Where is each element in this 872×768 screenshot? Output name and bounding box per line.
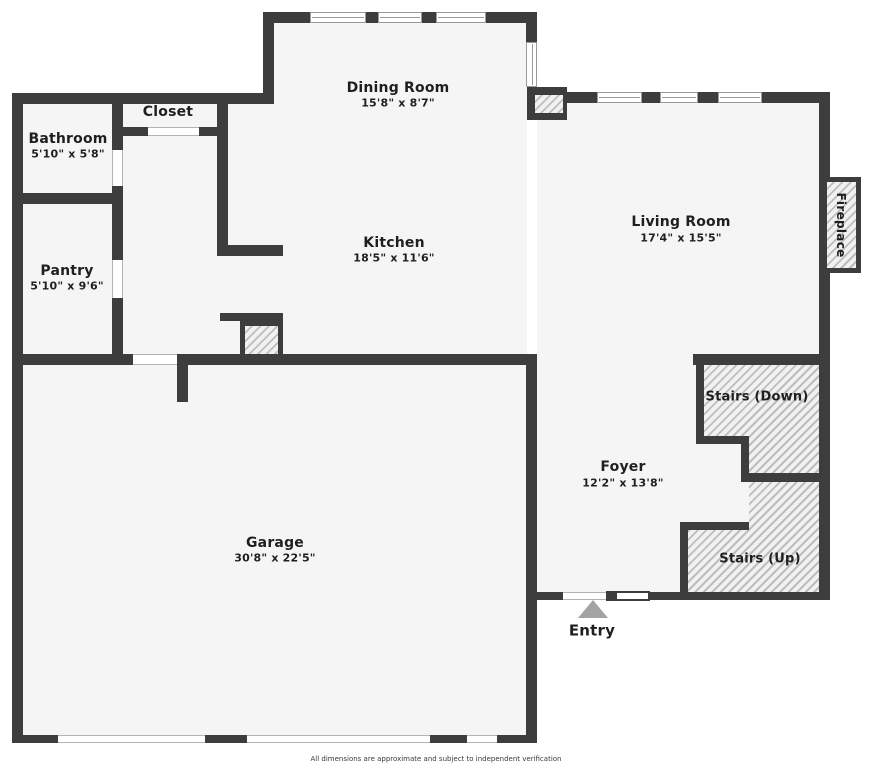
window xyxy=(378,12,422,23)
wall-segment xyxy=(650,592,830,600)
wall-segment xyxy=(12,93,274,104)
entry-label: Entry xyxy=(569,624,615,639)
fireplace-label: Fireplace xyxy=(834,192,848,257)
room-dims-foyer: 12'2" x 13'8" xyxy=(582,478,663,489)
door-opening-bathroom xyxy=(112,150,123,186)
room-label-dining-room: Dining Room xyxy=(347,81,450,95)
window xyxy=(436,12,486,23)
room-label-foyer: Foyer xyxy=(600,460,645,474)
wall-segment xyxy=(680,522,688,600)
wall-segment xyxy=(12,193,123,204)
room-dims-pantry: 5'10" x 9'6" xyxy=(30,281,104,292)
wall-segment xyxy=(642,92,660,103)
wall-segment xyxy=(526,12,537,42)
wall-segment xyxy=(177,365,188,402)
window xyxy=(597,92,642,103)
room-label-closet: Closet xyxy=(143,105,193,119)
wall-segment xyxy=(205,735,247,743)
wall-segment xyxy=(526,592,563,600)
entry-door xyxy=(615,591,650,601)
wall-segment xyxy=(696,365,704,444)
wall-segment xyxy=(217,104,228,256)
entry-marker-triangle xyxy=(578,600,608,618)
room-label-garage: Garage xyxy=(246,536,304,550)
window xyxy=(660,92,698,103)
window xyxy=(310,12,366,23)
wall-segment xyxy=(680,522,749,530)
window xyxy=(526,42,537,87)
door-opening-garage xyxy=(133,354,177,365)
wall-segment xyxy=(217,245,283,256)
wall-segment xyxy=(567,92,597,103)
room-label-bathroom: Bathroom xyxy=(28,132,107,146)
garage-door-opening xyxy=(247,735,430,743)
wall-segment xyxy=(12,93,23,743)
wall-segment xyxy=(422,12,436,23)
chimney-hatch xyxy=(535,95,563,113)
chimney-kitchen xyxy=(220,313,283,321)
wall-segment xyxy=(12,735,58,743)
room-label-living-room: Living Room xyxy=(631,215,730,229)
garage-door-opening xyxy=(58,735,205,743)
wall-segment xyxy=(430,735,467,743)
chimney-kitchen-box xyxy=(240,321,283,357)
wall-segment xyxy=(263,12,274,104)
wall-segment xyxy=(819,92,830,600)
wall-segment xyxy=(698,92,718,103)
floor-kitchen xyxy=(123,104,527,354)
disclaimer-text: All dimensions are approximate and subje… xyxy=(311,755,562,763)
wall-segment xyxy=(12,354,133,365)
door-opening-closet xyxy=(148,127,199,136)
floor-plan: Fireplace Bathroom 5'10" x 5'8" Closet P… xyxy=(0,0,872,768)
wall-segment xyxy=(123,127,148,136)
garage-window-opening xyxy=(467,735,497,743)
room-label-pantry: Pantry xyxy=(40,264,93,278)
wall-segment xyxy=(526,354,537,743)
room-label-stairs-down: Stairs (Down) xyxy=(706,391,809,404)
wall-segment xyxy=(366,12,378,23)
room-label-stairs-up: Stairs (Up) xyxy=(719,553,800,566)
room-dims-garage: 30'8" x 22'5" xyxy=(234,553,315,564)
wall-segment xyxy=(112,104,123,150)
wall-segment xyxy=(741,473,830,482)
room-dims-bathroom: 5'10" x 5'8" xyxy=(31,149,105,160)
wall-segment xyxy=(497,735,537,743)
wall-segment xyxy=(177,354,537,365)
wall-segment xyxy=(693,354,830,365)
wall-segment xyxy=(741,436,749,477)
room-dims-living-room: 17'4" x 15'5" xyxy=(640,233,721,244)
chimney-hatch xyxy=(245,326,278,357)
window xyxy=(718,92,762,103)
room-dims-kitchen: 18'5" x 11'6" xyxy=(353,253,434,264)
door-opening-pantry xyxy=(112,260,123,298)
room-label-kitchen: Kitchen xyxy=(363,236,424,250)
chimney-dining-box xyxy=(527,87,567,120)
room-dims-dining-room: 15'8" x 8'7" xyxy=(361,98,435,109)
